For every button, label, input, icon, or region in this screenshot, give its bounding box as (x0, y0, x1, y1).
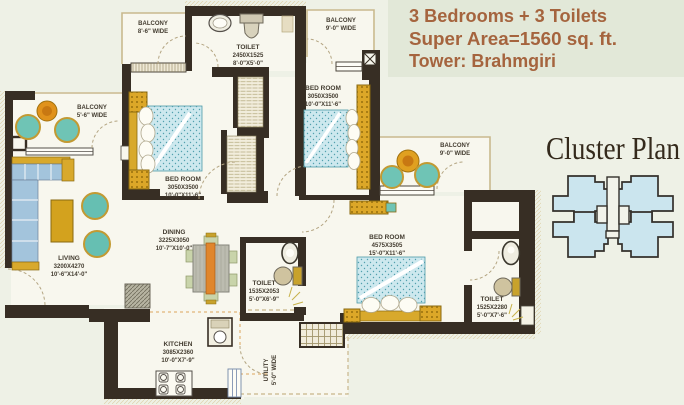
svg-text:UTILITY: UTILITY (264, 359, 270, 382)
svg-text:BED ROOM: BED ROOM (165, 176, 201, 183)
svg-text:3 Bedrooms + 3 Toilets: 3 Bedrooms + 3 Toilets (409, 6, 607, 26)
svg-text:BALCONY: BALCONY (77, 105, 107, 111)
svg-text:5'-0"X6'-9": 5'-0"X6'-9" (249, 297, 279, 303)
svg-text:2450X1525: 2450X1525 (233, 53, 264, 59)
svg-text:10'-0"X11'-6": 10'-0"X11'-6" (165, 193, 201, 199)
svg-text:9'-0" WIDE: 9'-0" WIDE (440, 151, 470, 157)
svg-text:5'-0"X7'-6": 5'-0"X7'-6" (477, 313, 507, 319)
svg-text:BALCONY: BALCONY (138, 21, 168, 27)
svg-text:5'-6" WIDE: 5'-6" WIDE (77, 113, 107, 119)
svg-text:3085X2360: 3085X2360 (163, 350, 194, 356)
svg-text:10'-0"X7'-9": 10'-0"X7'-9" (161, 358, 194, 364)
svg-text:8'-6" WIDE: 8'-6" WIDE (138, 29, 168, 35)
svg-text:TOILET: TOILET (253, 280, 276, 287)
svg-text:1535X2053: 1535X2053 (249, 289, 280, 295)
svg-text:3050X3500: 3050X3500 (168, 185, 199, 191)
svg-text:TOILET: TOILET (237, 44, 260, 51)
svg-text:10'-6"X14'-0": 10'-6"X14'-0" (51, 272, 88, 278)
svg-text:4575X3505: 4575X3505 (372, 243, 403, 249)
svg-text:Tower: Brahmgiri: Tower: Brahmgiri (409, 51, 556, 71)
svg-text:3050X3500: 3050X3500 (308, 94, 339, 100)
svg-text:BED ROOM: BED ROOM (305, 85, 341, 92)
svg-text:BALCONY: BALCONY (440, 143, 470, 149)
svg-text:Cluster Plan: Cluster Plan (546, 130, 680, 166)
svg-text:LIVING: LIVING (58, 255, 80, 262)
svg-text:8'-0"X5'-0": 8'-0"X5'-0" (233, 61, 263, 67)
svg-text:3225X3050: 3225X3050 (159, 238, 190, 244)
svg-text:TOILET: TOILET (481, 296, 504, 303)
svg-text:Super Area=1560 sq. ft.: Super Area=1560 sq. ft. (409, 29, 617, 49)
svg-text:10'-7"X10'-0": 10'-7"X10'-0" (156, 246, 193, 252)
svg-text:KITCHEN: KITCHEN (164, 341, 193, 348)
svg-text:3200X4270: 3200X4270 (54, 264, 85, 270)
svg-text:9'-0" WIDE: 9'-0" WIDE (326, 26, 356, 32)
svg-text:10'-0"X11'-6": 10'-0"X11'-6" (305, 102, 341, 108)
svg-text:15'-0"X11'-6": 15'-0"X11'-6" (369, 251, 405, 257)
svg-text:BALCONY: BALCONY (326, 18, 356, 24)
svg-text:BED ROOM: BED ROOM (369, 234, 405, 241)
svg-text:5'-0" WIDE: 5'-0" WIDE (272, 355, 278, 385)
svg-text:1525X2280: 1525X2280 (477, 305, 508, 311)
svg-text:DINING: DINING (163, 229, 186, 236)
